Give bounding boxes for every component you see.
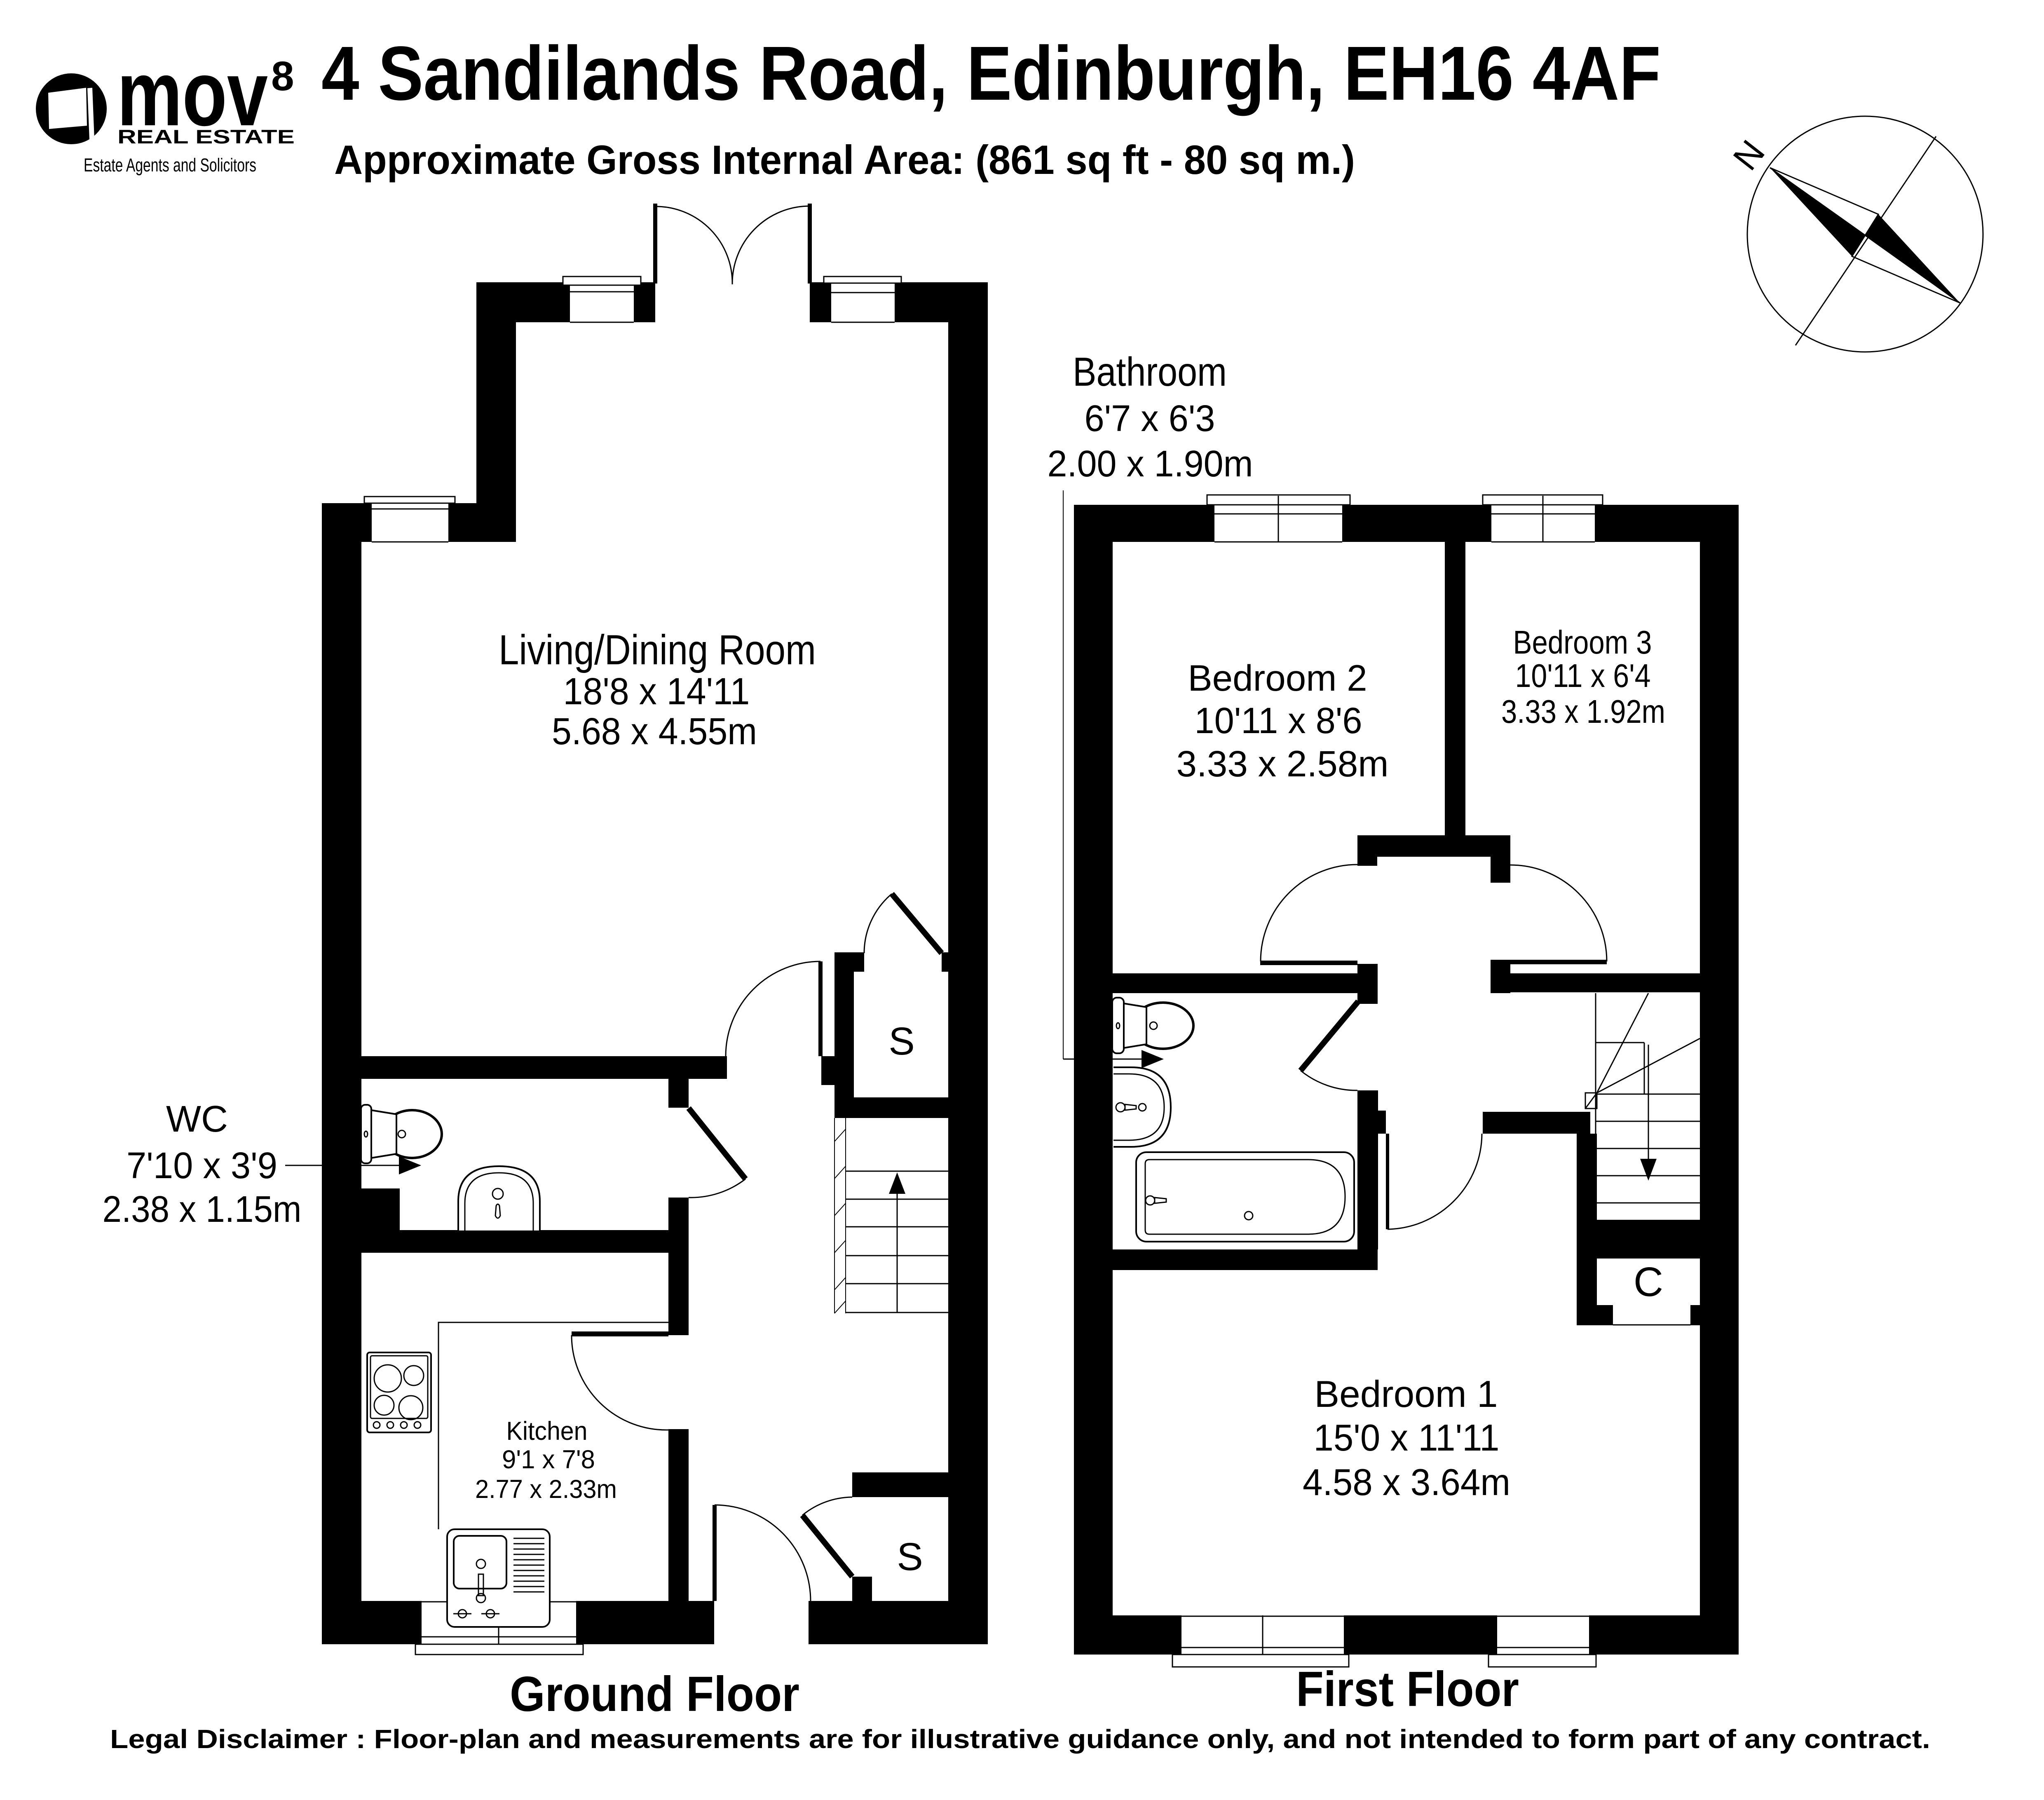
svg-text:9'1 x 7'8: 9'1 x 7'8 (502, 1445, 595, 1474)
svg-text:15'0 x 11'11: 15'0 x 11'11 (1314, 1417, 1500, 1459)
svg-text:Approximate Gross Internal Are: Approximate Gross Internal Area: (861 sq… (334, 137, 1355, 183)
svg-text:Living/Dining Room: Living/Dining Room (499, 626, 816, 673)
svg-text:First Floor: First Floor (1296, 1662, 1519, 1717)
svg-text:4 Sandilands Road, Edinburgh,: 4 Sandilands Road, Edinburgh, EH16 4AF (321, 31, 1661, 116)
svg-text:Legal Disclaimer : Floor-plan: Legal Disclaimer : Floor-plan and measur… (110, 1724, 1930, 1754)
svg-text:2.77 x 2.33m: 2.77 x 2.33m (475, 1475, 617, 1504)
svg-text:18'8 x 14'11: 18'8 x 14'11 (563, 670, 750, 712)
svg-text:5.68 x 4.55m: 5.68 x 4.55m (552, 710, 757, 752)
svg-text:REAL ESTATE: REAL ESTATE (117, 126, 295, 148)
svg-text:Bedroom 2: Bedroom 2 (1188, 657, 1367, 698)
svg-text:2.38 x 1.15m: 2.38 x 1.15m (103, 1189, 302, 1230)
svg-text:6'7 x 6'3: 6'7 x 6'3 (1085, 398, 1215, 439)
svg-text:S: S (897, 1535, 923, 1579)
svg-text:Bathroom: Bathroom (1073, 349, 1227, 394)
svg-text:Kitchen: Kitchen (506, 1417, 588, 1446)
svg-text:8: 8 (271, 53, 294, 99)
svg-text:Bedroom 3: Bedroom 3 (1513, 624, 1652, 661)
svg-text:2.00 x 1.90m: 2.00 x 1.90m (1048, 443, 1253, 485)
svg-text:S: S (888, 1020, 914, 1063)
svg-text:3.33 x 1.92m: 3.33 x 1.92m (1501, 693, 1665, 730)
svg-text:3.33 x 2.58m: 3.33 x 2.58m (1177, 743, 1389, 784)
svg-text:Bedroom 1: Bedroom 1 (1314, 1373, 1498, 1415)
svg-text:WC: WC (166, 1099, 228, 1140)
svg-text:10'11 x 6'4: 10'11 x 6'4 (1515, 657, 1651, 694)
svg-text:10'11 x 8'6: 10'11 x 8'6 (1195, 700, 1362, 741)
svg-text:Ground Floor: Ground Floor (510, 1666, 799, 1722)
svg-text:7'10 x 3'9: 7'10 x 3'9 (127, 1145, 277, 1186)
svg-text:4.58 x 3.64m: 4.58 x 3.64m (1303, 1462, 1510, 1503)
svg-text:Estate Agents and Solicitors: Estate Agents and Solicitors (84, 155, 256, 176)
svg-text:C: C (1634, 1259, 1663, 1305)
